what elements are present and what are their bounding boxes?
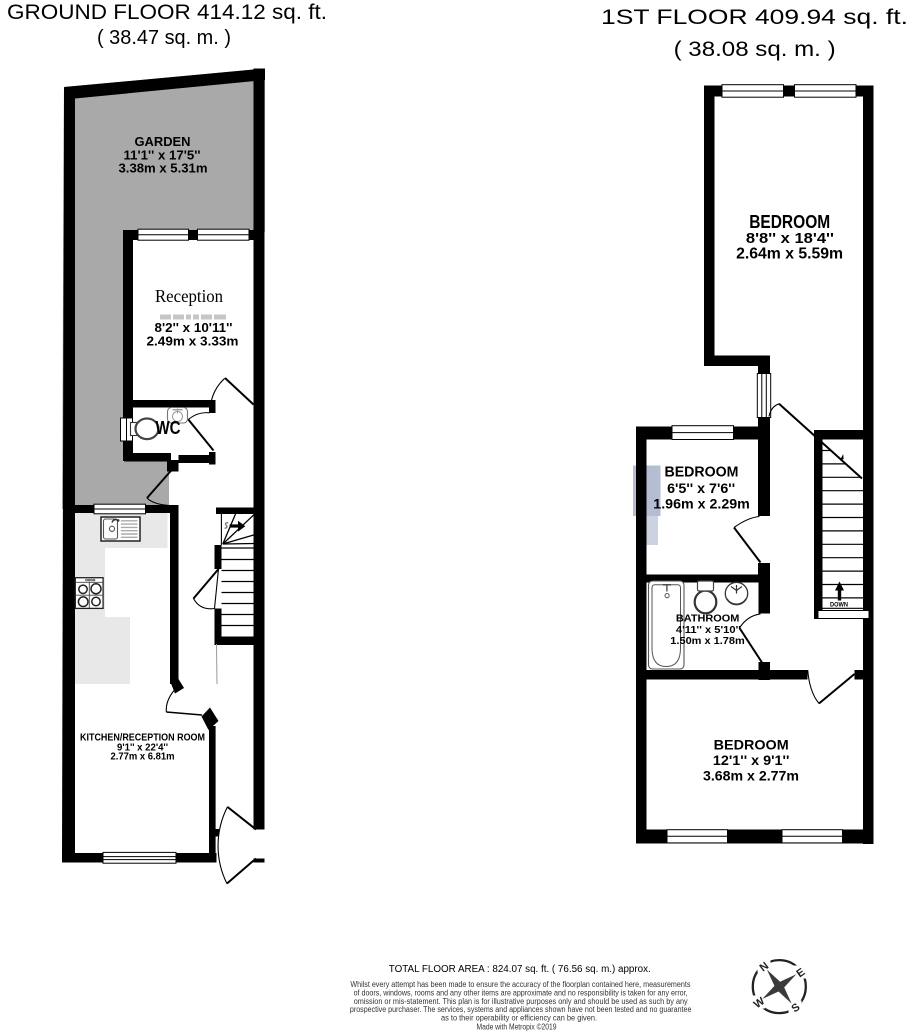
svg-text:3.68m x 2.77m: 3.68m x 2.77m: [703, 768, 799, 784]
svg-text:BATHROOM: BATHROOM: [676, 613, 740, 625]
svg-text:BEDROOM: BEDROOM: [749, 212, 830, 232]
svg-text:BEDROOM: BEDROOM: [665, 465, 739, 481]
svg-text:TOTAL FLOOR AREA : 824.07 sq.: TOTAL FLOOR AREA : 824.07 sq. ft. ( 76.5…: [389, 964, 651, 975]
svg-text:1ST FLOOR 409.94 sq. ft.: 1ST FLOOR 409.94 sq. ft.: [601, 5, 908, 29]
svg-text:4'11'' x 5'10'': 4'11'' x 5'10'': [676, 625, 741, 636]
svg-text:2.64m x 5.59m: 2.64m x 5.59m: [736, 245, 843, 262]
svg-text:2.49m x 3.33m: 2.49m x 3.33m: [147, 334, 239, 349]
svg-text:WC: WC: [156, 418, 181, 438]
svg-text:1.96m x 2.29m: 1.96m x 2.29m: [653, 496, 750, 512]
svg-text:Reception: Reception: [155, 286, 223, 306]
svg-text:Made with Metropix ©2019: Made with Metropix ©2019: [477, 1022, 557, 1031]
svg-text:DOWN: DOWN: [830, 602, 848, 609]
svg-text:( 38.47 sq. m. ): ( 38.47 sq. m. ): [97, 27, 231, 49]
svg-text:GROUND FLOOR 414.12 sq. ft.: GROUND FLOOR 414.12 sq. ft.: [7, 1, 327, 24]
svg-text:3.38m x 5.31m: 3.38m x 5.31m: [119, 161, 208, 176]
svg-text:BEDROOM: BEDROOM: [714, 737, 789, 753]
svg-text:6'5'' x 7'6'': 6'5'' x 7'6'': [667, 480, 735, 496]
svg-text:12'1'' x 9'1'': 12'1'' x 9'1'': [713, 752, 790, 768]
svg-text:2.77m x 6.81m: 2.77m x 6.81m: [111, 751, 175, 763]
svg-text:1.50m x 1.78m: 1.50m x 1.78m: [670, 636, 745, 647]
svg-text:( 38.08 sq. m. ): ( 38.08 sq. m. ): [674, 38, 836, 61]
